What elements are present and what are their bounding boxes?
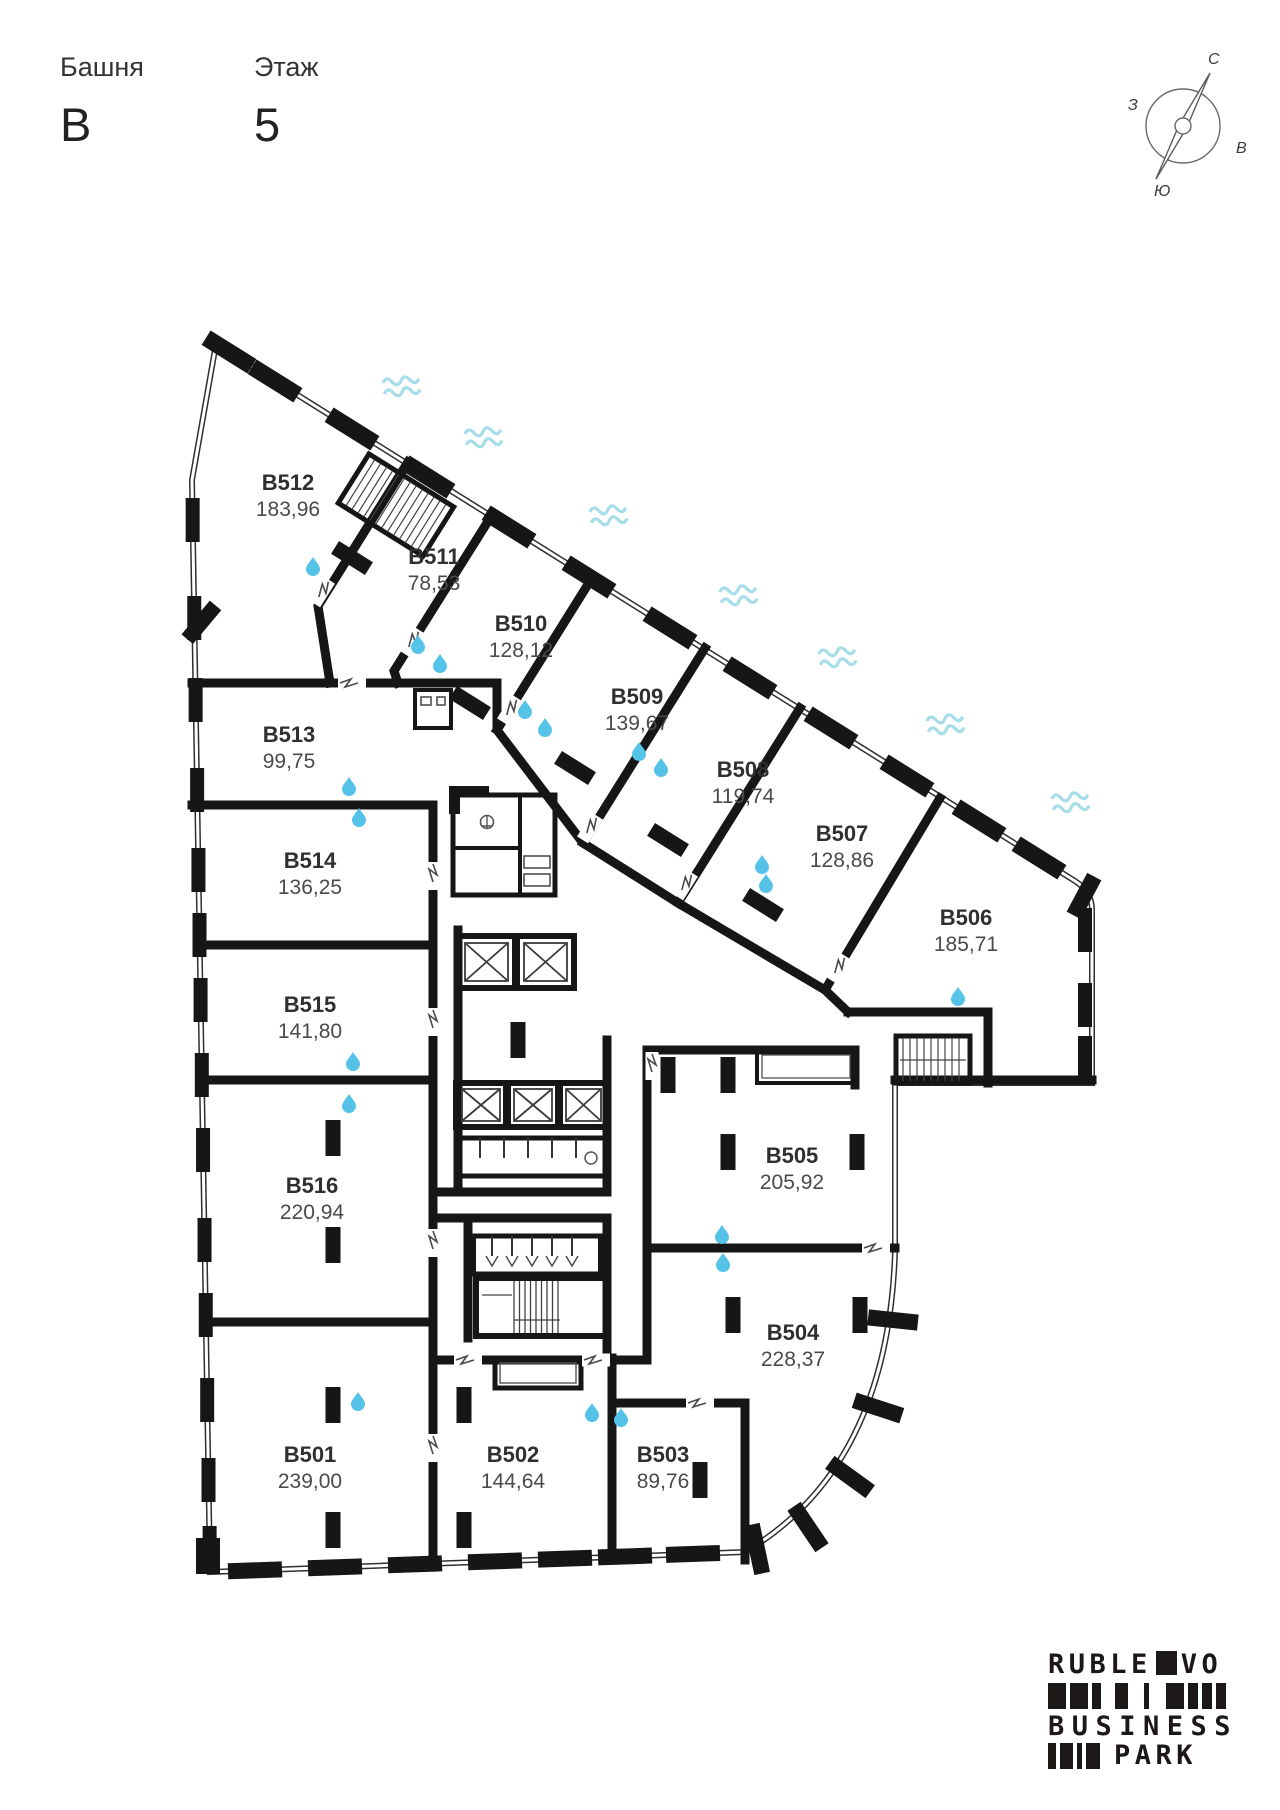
window-wave-icon — [720, 584, 758, 606]
room-label-b515: B515141,80 — [278, 992, 342, 1043]
wall-pier — [186, 498, 200, 542]
column-pier — [511, 1022, 526, 1058]
wall-pier — [538, 1550, 593, 1568]
wc-stall-partitions — [480, 1138, 576, 1158]
logo-block-icon — [1202, 1683, 1212, 1709]
wave-line — [590, 504, 627, 515]
column-pier — [693, 1462, 708, 1498]
room-label-b502: B502144,64 — [481, 1442, 546, 1493]
stair-treads — [514, 1281, 558, 1333]
logo-block-icon — [1156, 1651, 1177, 1675]
window-wave-icon — [927, 713, 965, 735]
wall-b509-b508 — [583, 648, 705, 843]
svg-text:78,53: 78,53 — [408, 572, 461, 595]
svg-text:B504: B504 — [767, 1320, 820, 1345]
svg-text:128,86: 128,86 — [810, 849, 874, 872]
water-drop-icon — [716, 1253, 730, 1272]
wall-pier — [880, 754, 935, 797]
room-label-b506: B506185,71 — [934, 905, 998, 956]
wall-pier — [468, 1552, 523, 1570]
sink-fixture — [524, 856, 550, 868]
logo-block-icon — [1144, 1683, 1149, 1709]
svg-text:99,75: 99,75 — [263, 750, 316, 773]
svg-text:B509: B509 — [611, 684, 664, 709]
column-pier — [554, 751, 596, 785]
water-drop-icon — [654, 758, 668, 777]
svg-text:128,12: 128,12 — [489, 639, 553, 662]
room-label-b512: B512183,96 — [256, 470, 320, 521]
wall-pier — [449, 786, 460, 814]
wall-pier — [308, 1558, 363, 1576]
logo-text: VO — [1181, 1650, 1223, 1679]
wave-line — [1053, 802, 1090, 813]
logo-block-icon — [1077, 1743, 1082, 1769]
sink-fixture — [524, 874, 550, 886]
elevator-x-icon — [462, 1089, 500, 1121]
water-drop-icon — [951, 987, 965, 1006]
wall-pier — [196, 1538, 220, 1574]
wall-pier — [1078, 908, 1092, 952]
logo-block-icon — [1092, 1683, 1101, 1709]
wc-small — [415, 690, 451, 728]
column-pier — [726, 1297, 741, 1333]
svg-text:B514: B514 — [284, 848, 337, 873]
wall-b506-bottom — [848, 1012, 988, 1083]
wc-fixtures — [486, 1256, 578, 1266]
wall-pier — [643, 606, 698, 649]
wall-pier — [202, 1458, 216, 1502]
wall-pier — [562, 555, 617, 598]
svg-text:119,74: 119,74 — [712, 785, 775, 808]
wave-line — [591, 515, 628, 526]
accessible-wc-icon — [482, 816, 492, 828]
wall-pier — [1012, 836, 1067, 879]
column-pier — [647, 823, 689, 857]
column-pier — [326, 1512, 341, 1548]
logo-line-2: BUSINESS — [1048, 1712, 1246, 1741]
elevator-x-icon — [524, 943, 567, 981]
accessible-wc-icon — [585, 1152, 597, 1164]
wall-pier — [228, 1561, 283, 1579]
wall-pier — [388, 1555, 443, 1573]
water-drop-icon — [715, 1225, 729, 1244]
column-pier — [850, 1134, 865, 1170]
column-pier — [853, 1297, 868, 1333]
water-drop-icon — [342, 1094, 356, 1113]
svg-text:B507: B507 — [816, 821, 869, 846]
svg-text:B510: B510 — [495, 611, 548, 636]
wc-partition — [453, 795, 520, 895]
room-label-b511: B51178,53 — [408, 544, 461, 595]
water-drop-icon — [342, 777, 356, 796]
wall-pier — [1078, 1036, 1092, 1080]
svg-text:B506: B506 — [940, 905, 993, 930]
wall-pier — [248, 359, 303, 402]
svg-text:141,80: 141,80 — [278, 1020, 342, 1043]
water-drop-icon — [433, 654, 447, 673]
logo-block-icon — [1048, 1743, 1056, 1769]
wall-pier — [193, 913, 207, 957]
water-drop-icon — [759, 874, 773, 893]
water-drop-icon — [306, 557, 320, 576]
room-label-b504: B504228,37 — [761, 1320, 825, 1371]
wc-cluster — [453, 795, 555, 895]
column-pier — [661, 1057, 676, 1093]
logo-block-icon — [1115, 1683, 1128, 1709]
water-drop-icon — [755, 855, 769, 874]
elevator-x-icon — [566, 1089, 601, 1121]
wall-pier — [191, 848, 205, 892]
wall-pier — [952, 799, 1007, 842]
stair-main — [476, 1278, 606, 1336]
svg-text:B502: B502 — [487, 1442, 540, 1467]
room-label-b507: B507128,86 — [810, 821, 874, 872]
window-wave-icon — [819, 646, 857, 668]
wall-pier — [482, 505, 537, 548]
wall-b505-left — [612, 1050, 647, 1360]
water-drop-icon — [351, 1392, 365, 1411]
window-wave-icon — [1052, 791, 1090, 813]
wave-line — [465, 426, 502, 437]
wall-pier — [598, 1236, 609, 1274]
column-pier — [326, 1227, 341, 1263]
wall-pier — [187, 596, 201, 640]
wall-pier — [825, 1456, 875, 1498]
svg-text:239,00: 239,00 — [278, 1470, 342, 1493]
svg-text:89,76: 89,76 — [637, 1470, 690, 1493]
wall-pier — [867, 1309, 918, 1330]
elevator-x-icon — [465, 943, 508, 981]
svg-text:144,64: 144,64 — [481, 1470, 546, 1493]
water-drop-icon — [346, 1052, 360, 1071]
vestibule-inner — [500, 1363, 576, 1383]
svg-text:139,67: 139,67 — [605, 712, 669, 735]
elevator-bank — [456, 1083, 607, 1127]
wall-pier — [190, 768, 204, 812]
column-pier — [326, 1120, 341, 1156]
door-opening — [825, 953, 851, 984]
water-drop-icon — [538, 718, 552, 737]
wall-pier — [199, 1293, 213, 1337]
wall-pier — [787, 1502, 828, 1552]
logo-block-icon — [1086, 1743, 1100, 1769]
wave-line — [720, 584, 757, 595]
column-pier — [449, 686, 491, 720]
logo-barcode-row — [1048, 1683, 1246, 1709]
svg-text:B513: B513 — [263, 722, 316, 747]
wall-pier — [1078, 983, 1092, 1027]
svg-text:220,94: 220,94 — [280, 1201, 345, 1224]
svg-text:183,96: 183,96 — [256, 498, 320, 521]
wall-pier — [195, 1053, 209, 1097]
svg-text:B501: B501 — [284, 1442, 337, 1467]
room-label-b505: B505205,92 — [760, 1143, 824, 1194]
wall-pier — [194, 978, 208, 1022]
room-label-b510: B510128,12 — [489, 611, 553, 662]
wave-line — [384, 386, 421, 397]
wall-pier — [189, 678, 203, 722]
room-label-b508: B508119,74 — [712, 757, 775, 808]
elevator-x-icon — [514, 1089, 552, 1121]
logo-line-1: RUBLEVO — [1048, 1650, 1246, 1679]
window-wave-icon — [590, 504, 628, 526]
column-pier — [721, 1057, 736, 1093]
logo-text: BUSINESS — [1048, 1712, 1238, 1741]
logo-block-icon — [1166, 1683, 1184, 1709]
svg-text:B511: B511 — [408, 544, 459, 569]
elevator-bank — [458, 936, 574, 988]
wall-pier — [198, 1218, 212, 1262]
wave-line — [819, 646, 856, 657]
logo-block-icon — [1216, 1683, 1226, 1709]
logo-block-icon — [1048, 1683, 1066, 1709]
svg-text:B508: B508 — [717, 757, 770, 782]
wall-pier — [196, 1128, 210, 1172]
wc-stall-partitions — [492, 1236, 572, 1256]
brand-logo: RUBLEVO BUSINESS PARK — [1048, 1650, 1246, 1770]
wave-line — [820, 657, 857, 668]
svg-text:B515: B515 — [284, 992, 337, 1017]
svg-text:205,92: 205,92 — [760, 1171, 824, 1194]
wall-pier — [200, 1378, 214, 1422]
logo-block-icon — [1070, 1683, 1088, 1709]
room-label-b509: B509139,67 — [605, 684, 669, 735]
wall-pier — [666, 1545, 721, 1563]
svg-text:B512: B512 — [262, 470, 315, 495]
column-pier — [326, 1387, 341, 1423]
wave-line — [1052, 791, 1089, 802]
door-opening — [577, 813, 603, 844]
column-pier — [457, 1512, 472, 1548]
room-label-b513: B51399,75 — [263, 722, 316, 773]
svg-text:136,25: 136,25 — [278, 876, 342, 899]
window-wave-icon — [465, 426, 503, 448]
wall-pier — [804, 706, 859, 749]
stair-run-line — [482, 1295, 560, 1320]
wall-pier — [325, 407, 380, 450]
svg-text:B516: B516 — [286, 1173, 339, 1198]
svg-text:B505: B505 — [766, 1143, 819, 1168]
wave-line — [383, 375, 420, 386]
logo-text: PARK — [1114, 1741, 1197, 1770]
column-pier — [457, 1387, 472, 1423]
service-shaft-inner — [762, 1055, 850, 1078]
svg-text:228,37: 228,37 — [761, 1348, 825, 1371]
room-label-b514: B514136,25 — [278, 848, 342, 899]
water-drop-icon — [585, 1403, 599, 1422]
wall-b511-b510 — [394, 515, 492, 683]
logo-line-3: PARK — [1048, 1741, 1246, 1770]
window-wave-icon — [383, 375, 421, 397]
logo-block-icon — [1188, 1683, 1198, 1709]
wall-pier — [465, 1236, 476, 1274]
wall-core-left — [458, 930, 468, 1338]
floor-plan: B501239,00 B502144,64 B50389,76 B504228,… — [0, 0, 1280, 1810]
wave-line — [721, 595, 758, 606]
water-drop-icon — [352, 808, 366, 827]
room-label-b503: B50389,76 — [637, 1442, 690, 1493]
column-pier — [742, 888, 784, 922]
wave-line — [927, 713, 964, 724]
logo-text: RUBLE — [1048, 1650, 1152, 1679]
svg-text:B503: B503 — [637, 1442, 690, 1467]
wave-line — [928, 724, 965, 735]
wall-pier — [598, 1548, 653, 1566]
room-label-b501: B501239,00 — [278, 1442, 342, 1493]
svg-text:185,71: 185,71 — [934, 933, 998, 956]
room-label-b516: B516220,94 — [280, 1173, 345, 1224]
wave-line — [466, 437, 503, 448]
logo-block-icon — [1060, 1743, 1073, 1769]
wc-fixture — [421, 697, 431, 705]
column-pier — [721, 1134, 736, 1170]
wall-pier — [723, 656, 778, 699]
wc-fixture — [437, 697, 445, 705]
